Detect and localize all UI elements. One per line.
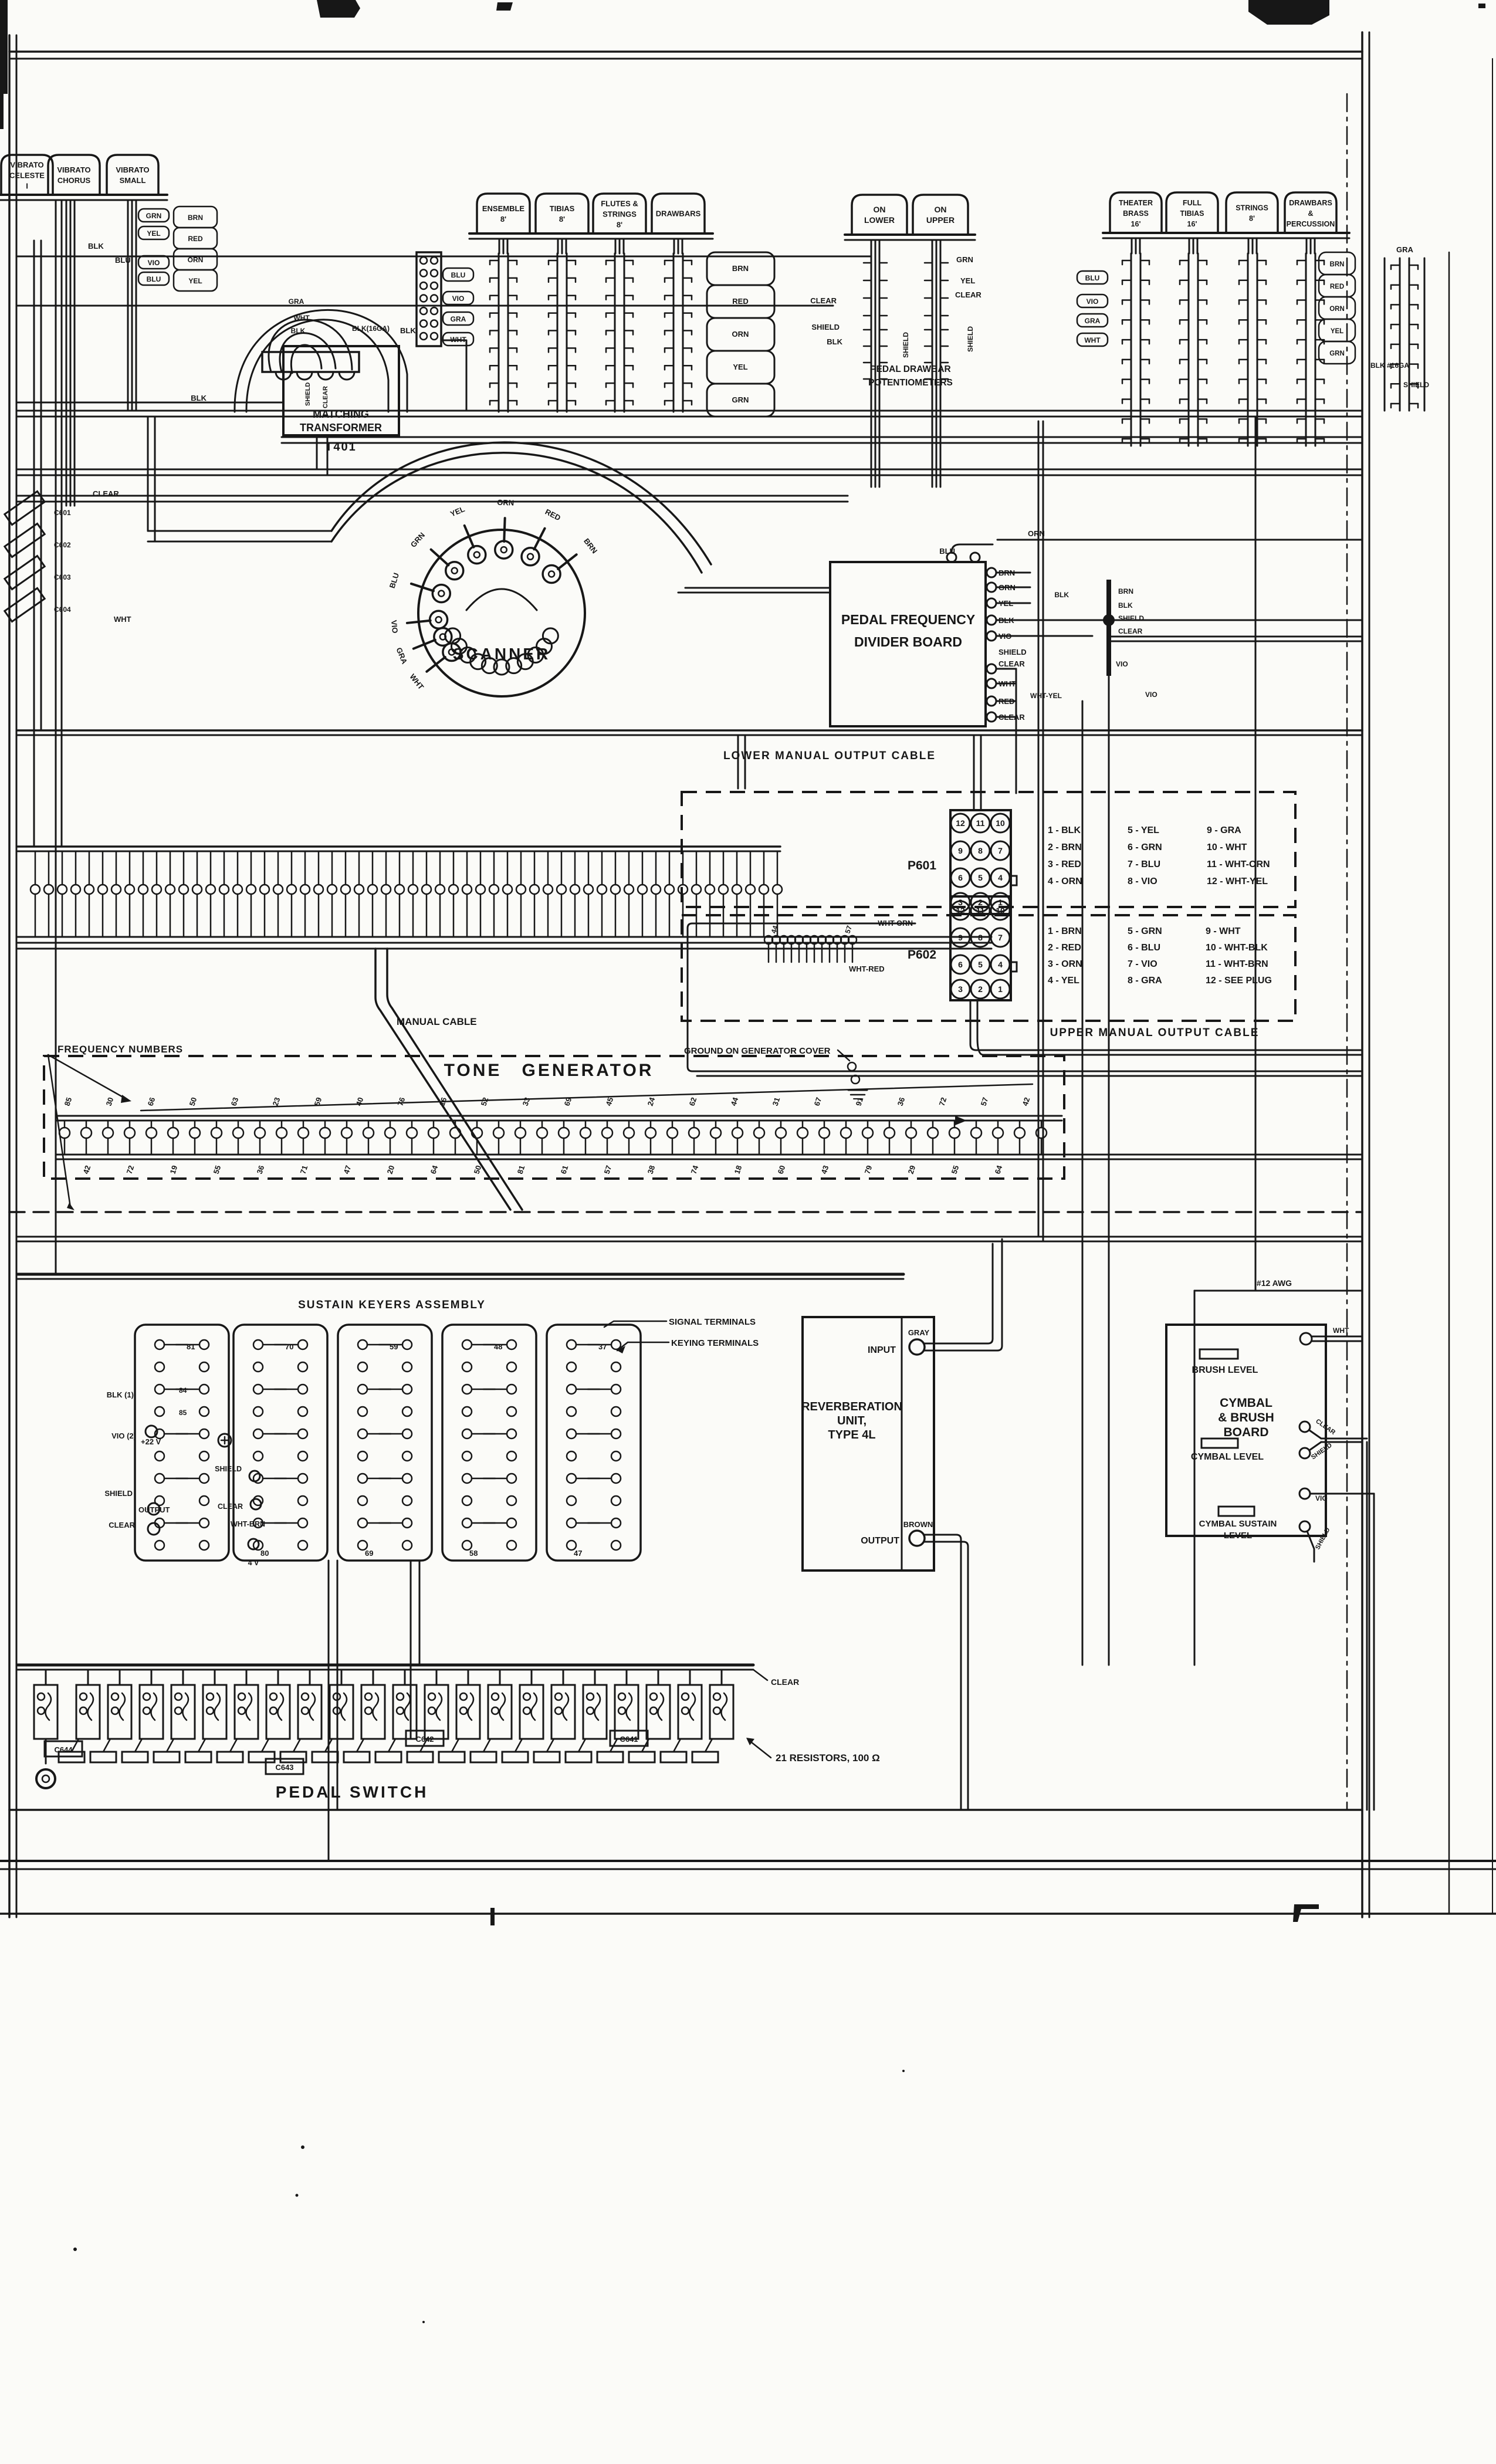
pedal-pots-caption: PEDAL DRAWBAR	[870, 364, 951, 374]
legend-entry: 11 - WHT-ORN	[1207, 859, 1270, 869]
stop-tab-label: 8'	[1249, 215, 1255, 223]
keying-terminals-label: KEYING TERMINALS	[671, 1338, 759, 1348]
wire-label: YEL	[1331, 328, 1343, 335]
solo-stop-tabs: THEATERBRASS16'FULLTIBIAS16'STRINGS8'DRA…	[1077, 192, 1429, 446]
wire-label: ORN	[497, 498, 514, 507]
wire-label: GRA	[289, 297, 304, 306]
stop-tab-label: DRAWBARS	[656, 209, 701, 218]
pin-number: 6	[958, 873, 963, 882]
legend-entry: 11 - WHT-BRN	[1206, 959, 1268, 969]
wire-label: BLK	[400, 326, 416, 335]
stop-tab-label: 8'	[617, 221, 622, 229]
wire-label: BLK #16GA	[1370, 361, 1409, 370]
tone-generator-title: TONE	[444, 1061, 502, 1080]
wire-label: VIO (2)	[111, 1431, 136, 1440]
pin-number: 1	[998, 984, 1003, 994]
capacitor-label: C643	[275, 1763, 293, 1772]
stop-tab-label: 8'	[559, 215, 565, 224]
legend-entry: 7 - BLU	[1128, 859, 1160, 869]
panel-number: 47	[574, 1549, 582, 1558]
keyer-number: 84	[179, 1386, 187, 1395]
stop-tab-label: CELESTE	[9, 171, 45, 180]
wire-label: BLK (1)	[107, 1390, 134, 1399]
legend-entry: 7 - VIO	[1128, 959, 1157, 969]
wire-label: BLK	[1118, 601, 1133, 610]
pin-number: 6	[958, 960, 963, 969]
frequency-number: 24	[646, 1096, 657, 1107]
tone-generator-title: GENERATOR	[522, 1061, 654, 1080]
capacitor-label: C641	[620, 1735, 638, 1744]
stop-tab-label: ON	[935, 205, 947, 214]
ground-label: GROUND ON GENERATOR COVER	[684, 1046, 831, 1056]
wire-label: SHIELD	[902, 332, 910, 358]
cymbal-title: CYMBAL	[1220, 1396, 1272, 1410]
frequency-number: 62	[688, 1096, 699, 1107]
wire-label: RED	[188, 235, 203, 243]
wire-label: SHIELD	[966, 326, 974, 352]
wire-label: ORN	[732, 330, 749, 339]
wire-label: SHIELD	[999, 648, 1027, 656]
cymbal-title: BOARD	[1224, 1426, 1269, 1439]
vibrato-stop-tabs: VIBRATOCELESTEIVIBRATOCHORUSVIBRATOSMALL…	[0, 155, 217, 622]
wire-label: SHIELD	[104, 1489, 133, 1498]
frequency-number: 18	[733, 1165, 744, 1175]
wire-label: CLEAR	[109, 1521, 135, 1529]
stop-tab-label: PERCUSSION	[1287, 220, 1335, 228]
pin-number: 7	[998, 846, 1003, 855]
pin-number: 5	[978, 873, 983, 882]
legend-entry: 1 - BRN	[1048, 926, 1082, 936]
frequency-number: 55	[950, 1165, 961, 1175]
wire-label: WHT	[1084, 336, 1101, 344]
pin-number: 5	[978, 960, 983, 969]
frequency-number: 19	[168, 1165, 180, 1175]
wire-label: CLEAR	[955, 290, 981, 299]
reverb-title: REVERBERATION	[801, 1400, 902, 1413]
legend-entry: 1 - BLK	[1048, 825, 1081, 835]
legend-entry: 2 - BRN	[1048, 842, 1082, 852]
wire-label: GRAY	[908, 1328, 930, 1337]
wire-label: ORN	[1329, 306, 1345, 313]
wire-label: YEL	[188, 277, 202, 285]
reverb-title: UNIT,	[837, 1414, 867, 1427]
panel-number: 70	[285, 1342, 293, 1351]
frequency-number: 42	[82, 1165, 93, 1175]
wire-label: CLEAR	[322, 386, 329, 408]
pin-number: 10	[996, 906, 1005, 915]
scanner-unit: WHTGRAVIOBLUGRNYELORNREDBRN	[148, 417, 711, 696]
frequency-number: 55	[212, 1165, 223, 1175]
frequency-number: 20	[385, 1165, 397, 1175]
cable-label-lower: LOWER MANUAL OUTPUT CABLE	[723, 750, 936, 762]
wire-label: GRN	[146, 212, 162, 220]
pin-number: 9	[958, 846, 963, 855]
wire-label: BLU	[1085, 274, 1100, 282]
frequency-number: 64	[993, 1164, 1004, 1175]
wire-label: VIO	[1145, 691, 1157, 699]
frequency-number: 36	[255, 1165, 266, 1175]
frequency-number: 31	[771, 1096, 782, 1107]
frequency-number: 81	[516, 1165, 527, 1175]
frequency-number: 52	[479, 1096, 490, 1107]
frequency-number: 40	[354, 1096, 365, 1107]
wire-label: GRN	[1329, 350, 1345, 357]
stop-tab-label: TIBIAS	[550, 204, 575, 213]
stop-tab-label: CHORUS	[57, 176, 91, 185]
tone-generator: 8530665063235940761652336945246244316791…	[9, 949, 1362, 1212]
reverb-unit	[803, 1239, 1002, 1810]
legend-entry: 4 - ORN	[1048, 876, 1082, 886]
wire-label: VIO	[1116, 660, 1128, 668]
wire-label: BRN	[732, 264, 749, 273]
frequency-number: 71	[299, 1165, 310, 1175]
cymbal-title: & BRUSH	[1218, 1411, 1274, 1424]
wire-label: 4 V	[248, 1559, 259, 1567]
wire-label: WHT	[293, 314, 310, 322]
panel-number: 37	[598, 1342, 607, 1351]
frequency-number: 38	[646, 1165, 657, 1175]
legend-entry: 3 - RED	[1048, 859, 1081, 869]
wire-label: BLK	[827, 337, 842, 346]
stop-tab-label: VIBRATO	[57, 165, 90, 174]
wire-label: YEL	[147, 229, 160, 238]
legend-entry: 12 - SEE PLUG	[1206, 976, 1272, 986]
stop-tab-label: VIBRATO	[116, 165, 149, 174]
wire-label: CLEAR	[810, 296, 837, 305]
wire-label: OUTPUT	[138, 1505, 170, 1514]
stop-tab-label: FULL	[1183, 199, 1201, 207]
capacitor	[5, 523, 45, 557]
stop-tab-label: STRINGS	[603, 210, 637, 219]
wire-label: WHT	[408, 672, 425, 692]
frequency-number: 43	[820, 1165, 831, 1175]
wire-label: BLK(16GA)	[352, 324, 390, 333]
stop-tab-label: ON	[874, 205, 886, 214]
wire-label: SHIELD	[811, 323, 840, 331]
stop-tab-label: 16'	[1187, 220, 1197, 228]
panel-number: 48	[494, 1342, 502, 1351]
frequency-number: 50	[188, 1096, 199, 1107]
wire-label: WHT-BRN	[231, 1520, 265, 1528]
reverb-input-label: INPUT	[868, 1345, 896, 1355]
panel-number: 59	[390, 1342, 398, 1351]
legend-entry: 6 - BLU	[1128, 943, 1160, 953]
stop-tab-label: 16'	[1131, 220, 1141, 228]
reverb-output-label: OUTPUT	[861, 1536, 899, 1546]
cymbal-level-label: CYMBAL LEVEL	[1191, 1452, 1264, 1462]
wire-label: BRN	[582, 537, 599, 555]
capacitor-label: C642	[415, 1735, 434, 1744]
pin-number: 4	[998, 873, 1003, 882]
panel-number: 81	[187, 1342, 195, 1351]
pin-number: 8	[978, 846, 983, 855]
signal-terminals-label: SIGNAL TERMINALS	[669, 1317, 756, 1327]
wire-label: WHT-RED	[849, 964, 885, 973]
connector-name-p601: P601	[908, 859, 936, 872]
stop-tab-label: VIBRATO	[10, 161, 43, 170]
frequency-number: 44	[729, 1096, 740, 1107]
frequency-number: 42	[1021, 1096, 1032, 1107]
wire-label: BLU	[939, 547, 955, 556]
pin-number: 11	[976, 818, 985, 828]
wire-label: GRA	[451, 315, 466, 323]
legend-entry: 12 - WHT-YEL	[1207, 876, 1268, 886]
legend-entry: 9 - GRA	[1207, 825, 1241, 835]
frequency-number: 44	[770, 925, 780, 935]
stop-tab-label: UPPER	[926, 215, 955, 225]
cymbal-sustain-label: CYMBAL SUSTAIN	[1199, 1519, 1277, 1529]
wire-label: BLK	[191, 394, 207, 402]
wire-label: RED	[732, 297, 748, 306]
wire-label: SHIELD	[1314, 1527, 1332, 1551]
frequency-number: 23	[271, 1096, 282, 1107]
stop-tab-label: ENSEMBLE	[482, 204, 525, 213]
wire-label: CLEAR	[771, 1677, 799, 1687]
frequency-number: 67	[813, 1096, 824, 1107]
wire-label: SHIELD	[304, 383, 312, 406]
wire-label: GRA	[1396, 245, 1414, 254]
wire-label: BROWN	[903, 1520, 933, 1529]
cable-label-upper: UPPER MANUAL OUTPUT CABLE	[1050, 1027, 1260, 1039]
wire-label: CLEAR	[1118, 627, 1143, 635]
wire-label: BRN	[1118, 587, 1133, 595]
frequency-number: 45	[604, 1096, 615, 1107]
frequency-number: 85	[63, 1096, 74, 1107]
wire-label: VIO	[148, 259, 160, 267]
frequency-number: 47	[342, 1165, 353, 1175]
frequency-number: 60	[776, 1165, 787, 1175]
awg-label: #12 AWG	[1257, 1278, 1292, 1288]
wire-label: BRN	[188, 214, 203, 222]
frequency-number: 72	[125, 1165, 136, 1175]
frequency-number: 30	[104, 1096, 116, 1107]
brush-level-label: BRUSH LEVEL	[1192, 1365, 1258, 1375]
wire-label: YEL	[733, 363, 747, 371]
frequency-numbers-label: FREQUENCY NUMBERS	[57, 1044, 183, 1055]
legend-entry: 8 - GRA	[1128, 976, 1162, 986]
stop-tab-label: I	[26, 182, 28, 191]
capacitor	[5, 588, 45, 621]
pin-number: 10	[996, 818, 1005, 828]
reverb-title: TYPE 4L	[828, 1429, 875, 1441]
keyers-title: SUSTAIN KEYERS ASSEMBLY	[298, 1299, 486, 1311]
legend-entry: 8 - VIO	[1128, 876, 1157, 886]
connector-name-p602: P602	[908, 948, 936, 962]
legend-entry: 5 - YEL	[1128, 825, 1159, 835]
pin-number: 2	[978, 984, 983, 994]
pedal-switch-title: PEDAL SWITCH	[276, 1783, 429, 1801]
wire-label: YEL	[449, 505, 466, 519]
pin-number: 12	[956, 906, 965, 915]
frequency-number: 33	[521, 1096, 532, 1107]
divider-title: DIVIDER BOARD	[854, 634, 962, 649]
wire-label: SHIELD	[1403, 381, 1429, 389]
wire-label: YEL	[960, 276, 975, 285]
wire-label: VIO	[452, 295, 465, 303]
wire-label: BRN	[1330, 261, 1345, 268]
stop-tab-label: FLUTES &	[601, 199, 638, 208]
wire-label: GRA	[1085, 317, 1101, 325]
wire-label: BLU	[147, 275, 161, 283]
frequency-number: 64	[429, 1164, 440, 1175]
capacitor	[5, 556, 45, 589]
static-labels: MATCHING TRANSFORMER T401 SCANNER PEDAL …	[57, 364, 1349, 1801]
stop-tab-label: THEATER	[1119, 199, 1153, 207]
frequency-number: 76	[396, 1096, 407, 1107]
stop-tab-label: STRINGS	[1236, 204, 1268, 212]
frequency-number: 57	[844, 925, 854, 935]
pin-number: 7	[998, 933, 1003, 942]
pin-number: 3	[958, 984, 963, 994]
stop-tab-label: LOWER	[864, 215, 895, 225]
wire-label: GRN	[956, 255, 973, 264]
wire-label: CLEAR	[93, 489, 119, 498]
legend-entry: 10 - WHT	[1207, 842, 1247, 852]
page-frame	[0, 0, 1496, 2323]
divider-title: PEDAL FREQUENCY	[841, 612, 975, 627]
frequency-number: 36	[896, 1096, 907, 1107]
wire-label: SHIELD	[215, 1465, 242, 1473]
stop-tab-label: 8'	[500, 215, 506, 224]
frequency-number: 79	[863, 1165, 874, 1175]
pedal-switch: C644C643C642C641	[18, 1665, 771, 1788]
wire-label: CLEAR	[999, 659, 1025, 668]
wire-label: RED	[544, 507, 562, 523]
long-wires	[18, 200, 1449, 1914]
wiring-diagram: MATCHING TRANSFORMER T401 SCANNER PEDAL …	[0, 0, 1496, 2464]
stop-tab-label: &	[1308, 209, 1313, 218]
legend-entry: 9 - WHT	[1206, 926, 1241, 936]
wire-label: BLK	[291, 327, 306, 335]
wire-label: SHIELD	[1310, 1441, 1333, 1461]
keyer-number: 85	[179, 1409, 187, 1417]
stop-tab-label: BRASS	[1123, 209, 1149, 218]
matching-transformer: GRAWHTBLKBLK(16GA)BLKBLKSHIELDCLEAR	[18, 252, 466, 475]
panel-number: 58	[469, 1549, 478, 1558]
wire-label: BLU	[388, 571, 401, 589]
frequency-number: 72	[937, 1096, 949, 1107]
wire-label: WHT-YEL	[1030, 692, 1062, 700]
frequency-number: 61	[559, 1165, 570, 1175]
wire-label: +22 V	[141, 1437, 161, 1446]
frequency-number: 29	[906, 1165, 918, 1175]
stop-tab-label: SMALL	[120, 176, 146, 185]
frequency-number: 63	[229, 1096, 241, 1107]
wire-label: GRA	[394, 647, 409, 666]
wire-label: BLK	[1054, 591, 1069, 599]
pin-number: 12	[956, 818, 965, 828]
legend-entry: 5 - GRN	[1128, 926, 1162, 936]
sustain-keyers: 8170805969485837478485BLK (1)VIO (2)+22 …	[18, 1237, 1362, 1567]
wire-label: SHIELD	[1118, 614, 1144, 622]
frequency-number: 91	[854, 1096, 865, 1107]
legend-entry: 6 - GRN	[1128, 842, 1162, 852]
pin-number: 4	[998, 960, 1003, 969]
wire-label: WHT	[114, 615, 131, 624]
frequency-number: 57	[979, 1096, 990, 1107]
wire-label: VIO	[1087, 297, 1099, 306]
manual-harness: 4457	[18, 847, 991, 962]
transformer-name: TRANSFORMER	[300, 422, 382, 434]
stop-tab-label: DRAWBARS	[1289, 199, 1332, 207]
capacitor-label: C644	[54, 1745, 73, 1754]
wire-label: BLK	[88, 242, 104, 251]
wire-label: BLU	[451, 271, 466, 279]
legend-entry: 10 - WHT-BLK	[1206, 943, 1268, 953]
wire-label: VIO	[390, 620, 400, 634]
legend-entry: 4 - YEL	[1048, 976, 1079, 986]
panel-number: 80	[260, 1549, 269, 1558]
legend-entry: 3 - ORN	[1048, 959, 1082, 969]
legend-entry: 2 - RED	[1048, 943, 1081, 953]
frequency-number: 74	[689, 1164, 700, 1175]
scanned-schematic-page: { "stop_tabs": { "left": {"labels": [["V…	[0, 0, 1496, 2464]
cable-label-manual: MANUAL CABLE	[397, 1016, 477, 1027]
pin-number: 11	[976, 906, 985, 915]
wire-label: GRN	[409, 530, 427, 549]
wire-label: RED	[1330, 283, 1344, 290]
frequency-number: 66	[146, 1096, 157, 1107]
resistors-note: 21 RESISTORS, 100 Ω	[776, 1752, 880, 1764]
panel-number: 69	[365, 1549, 373, 1558]
wire-label: CLEAR	[218, 1502, 243, 1511]
stop-tab-label: TIBIAS	[1180, 209, 1204, 218]
frequency-number: 57	[603, 1165, 614, 1175]
wire-label: GRN	[732, 395, 749, 404]
output-cables: 1211109876543211211109876543211 - BLK2 -…	[18, 730, 1362, 1076]
